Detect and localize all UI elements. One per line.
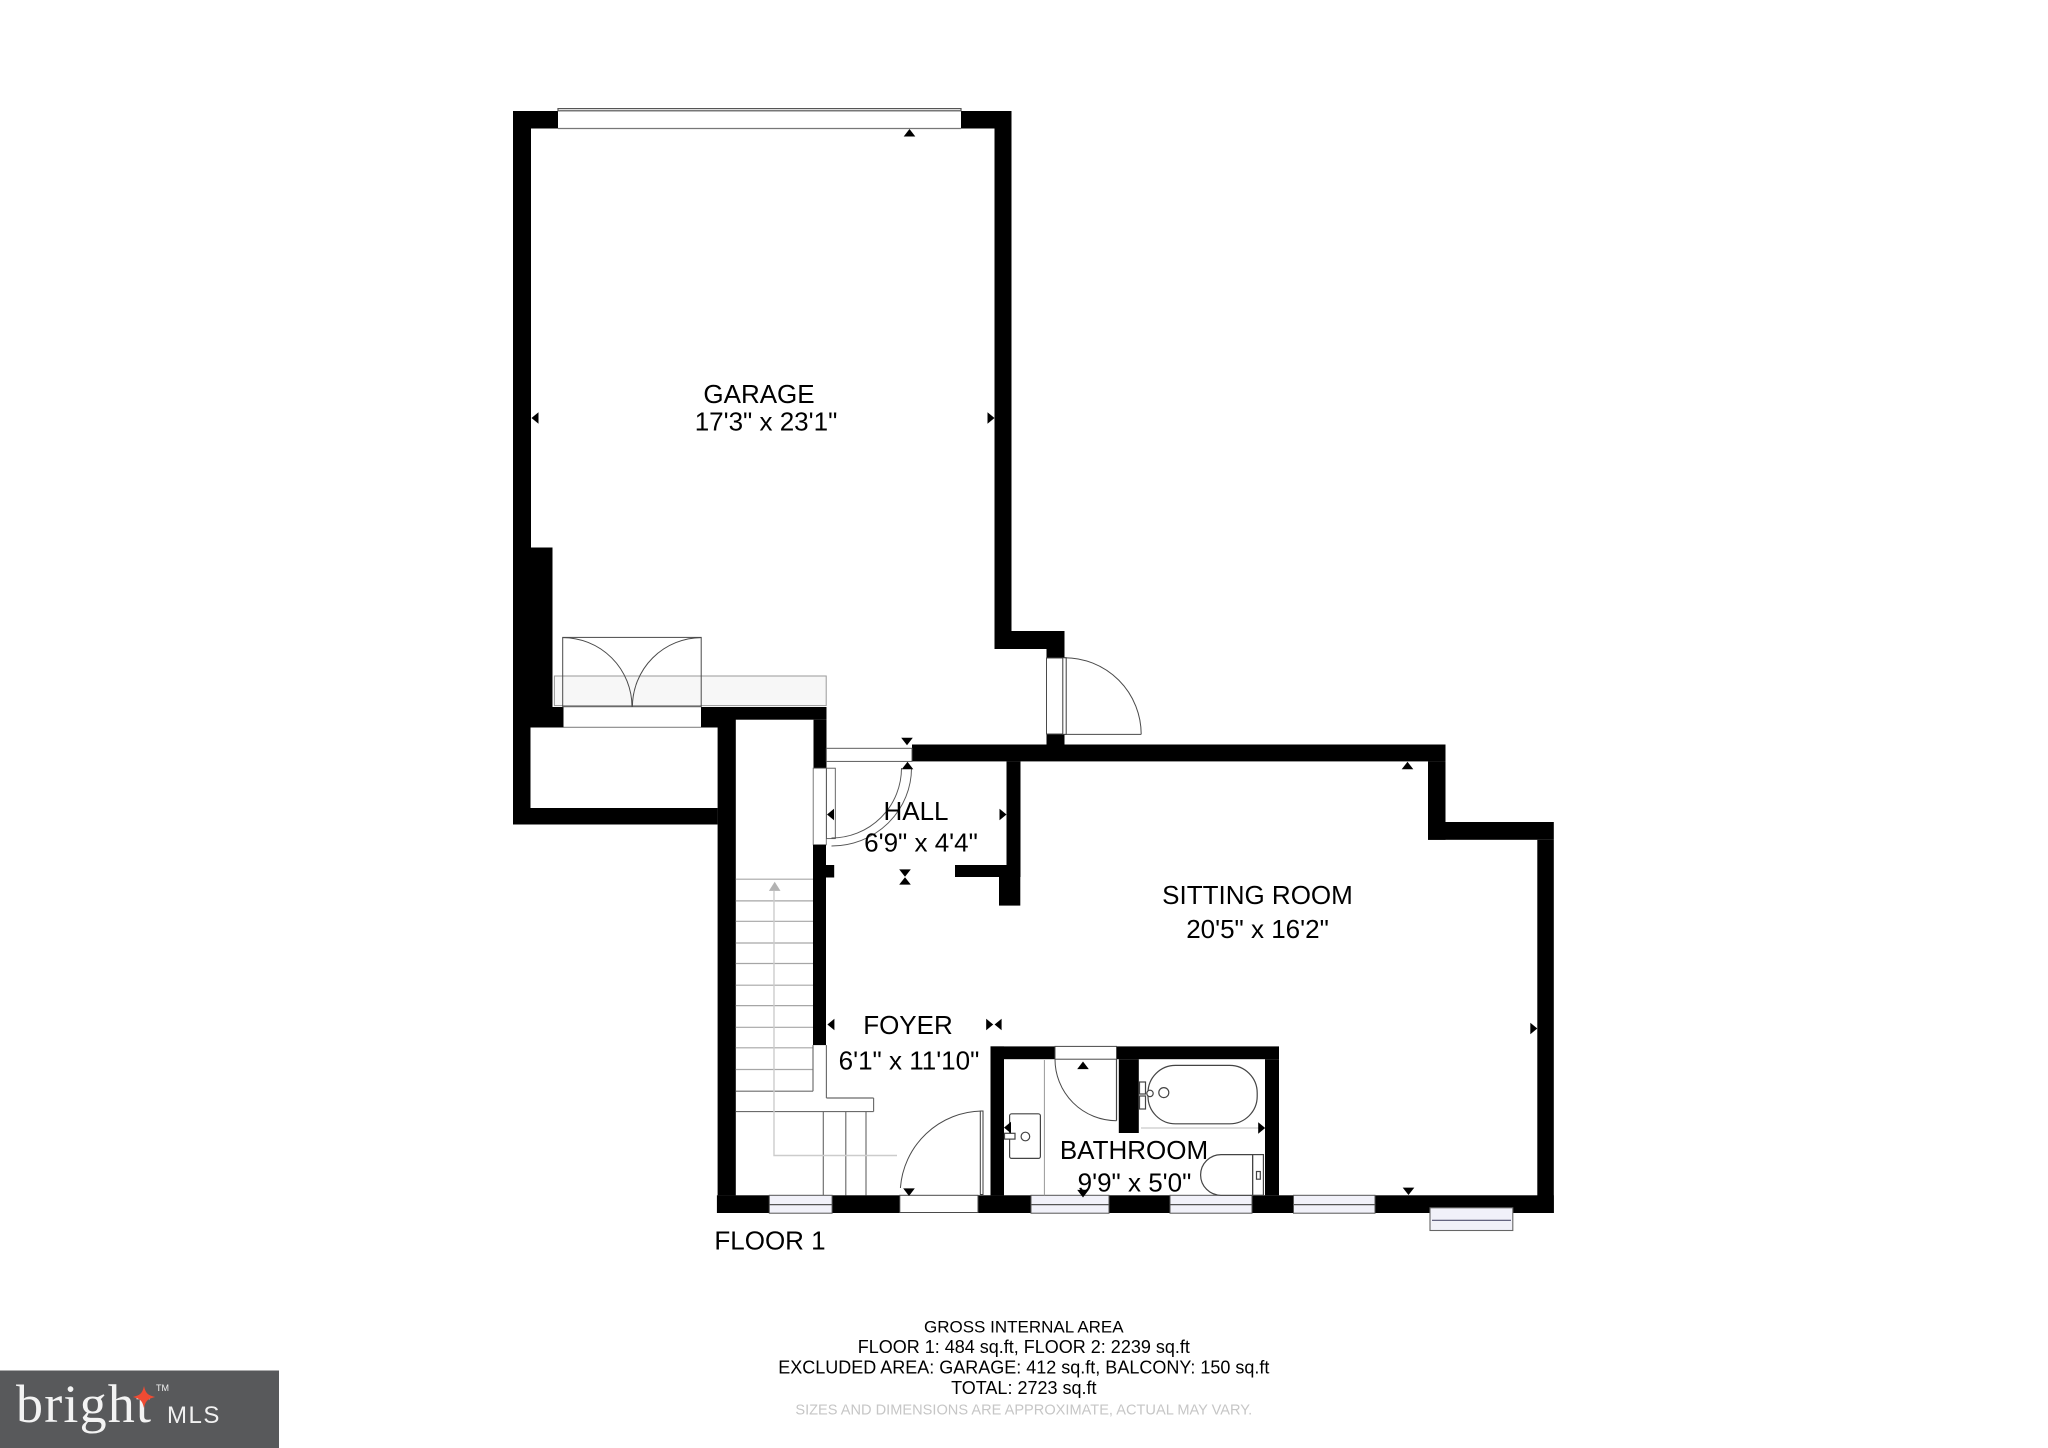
svg-text:BATHROOM: BATHROOM [1060,1135,1208,1165]
svg-text:GARAGE: GARAGE [703,379,814,409]
svg-text:FLOOR 1: FLOOR 1 [714,1225,825,1255]
svg-text:TM: TM [156,1383,169,1393]
svg-text:GROSS INTERNAL AREA: GROSS INTERNAL AREA [924,1318,1124,1337]
svg-text:6'1" x 11'10": 6'1" x 11'10" [839,1046,980,1076]
svg-text:EXCLUDED AREA: GARAGE: 412 sq.: EXCLUDED AREA: GARAGE: 412 sq.ft, BALCON… [778,1358,1269,1378]
svg-text:FLOOR 1: 484 sq.ft, FLOOR 2: 2: FLOOR 1: 484 sq.ft, FLOOR 2: 2239 sq.ft [858,1337,1190,1357]
svg-text:FOYER: FOYER [863,1010,953,1040]
svg-text:6'9" x 4'4": 6'9" x 4'4" [864,828,978,858]
svg-text:SIZES AND DIMENSIONS ARE APPRO: SIZES AND DIMENSIONS ARE APPROXIMATE, AC… [795,1403,1252,1419]
svg-text:20'5" x 16'2": 20'5" x 16'2" [1186,914,1329,944]
svg-text:TOTAL: 2723 sq.ft: TOTAL: 2723 sq.ft [951,1378,1096,1398]
svg-text:MLS: MLS [167,1402,221,1429]
svg-text:SITTING ROOM: SITTING ROOM [1162,880,1353,910]
svg-text:17'3" x 23'1": 17'3" x 23'1" [695,406,838,436]
svg-text:9'9" x 5'0": 9'9" x 5'0" [1078,1168,1192,1198]
svg-text:HALL: HALL [883,796,948,826]
svg-text:bright: bright [16,1374,152,1434]
